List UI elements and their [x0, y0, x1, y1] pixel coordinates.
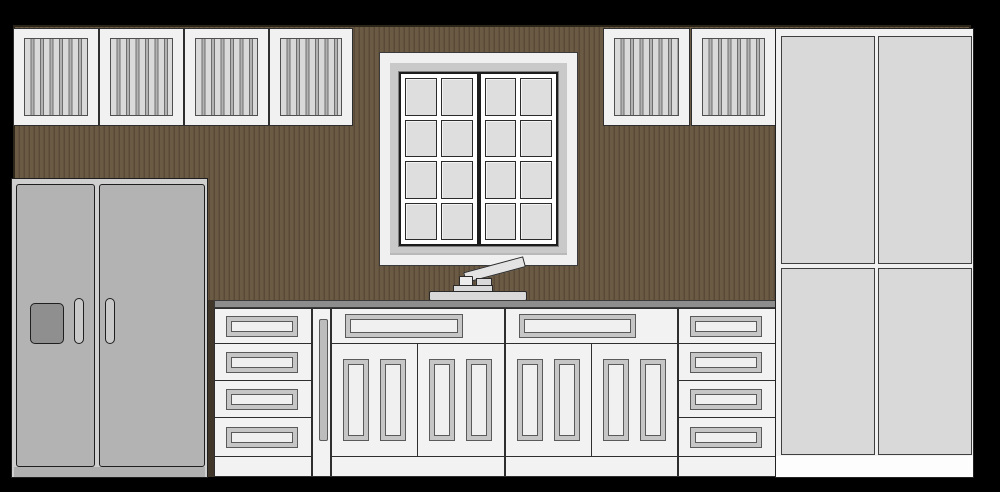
drawer-recess-panel — [345, 314, 463, 338]
fridge-ice-dispenser[interactable] — [30, 303, 64, 344]
sink-cabinet-4[interactable] — [505, 308, 678, 477]
upper-cabinet-6[interactable] — [691, 28, 776, 126]
drawer-recess-panel-center — [350, 319, 458, 333]
door-recess-center — [348, 364, 364, 436]
door-recess-panel — [603, 359, 629, 441]
drawer-recess-panel — [226, 352, 298, 373]
drawer-recess-panel — [226, 316, 298, 337]
fridge-base — [14, 467, 205, 477]
door-recess-center — [471, 364, 487, 436]
tall-pantry-cabinet[interactable] — [775, 28, 974, 478]
window-pane — [441, 161, 473, 199]
door-recess-center — [559, 364, 575, 436]
upper-cabinet-5[interactable] — [603, 28, 690, 126]
drawer[interactable] — [215, 309, 311, 344]
cabinet-door[interactable] — [418, 344, 504, 456]
filler-2[interactable] — [312, 308, 331, 477]
drawer[interactable] — [679, 344, 775, 381]
window-pane — [405, 120, 437, 158]
cabinet-door[interactable] — [332, 344, 418, 456]
window-pane — [485, 78, 517, 116]
drawer-recess-panel — [690, 352, 762, 373]
upper-cabinet-1[interactable] — [13, 28, 99, 126]
drawer-recess-panel-center — [524, 319, 631, 333]
drawer[interactable] — [679, 418, 775, 457]
door-recess-panel — [466, 359, 492, 441]
door-recess-panel — [517, 359, 543, 441]
pantry-plinth — [776, 456, 973, 477]
drawer[interactable] — [679, 381, 775, 418]
window-inner — [398, 71, 559, 247]
sink-top-drawer[interactable] — [506, 309, 677, 344]
door-recess-panel — [429, 359, 455, 441]
fridge-door-handle — [105, 298, 115, 344]
cabinet-door[interactable] — [592, 344, 678, 456]
cabinet-door[interactable] — [506, 344, 592, 456]
drawer[interactable] — [215, 344, 311, 381]
slat-door-panel — [24, 38, 88, 116]
pantry-door[interactable] — [878, 36, 972, 264]
window-pane — [405, 78, 437, 116]
window-pane — [405, 203, 437, 241]
upper-cabinet-2[interactable] — [99, 28, 184, 126]
window-casement-1[interactable] — [399, 72, 479, 246]
slat-door-panel — [702, 38, 765, 116]
drawer-recess-panel — [690, 389, 762, 410]
drawer-recess-panel-center — [695, 432, 757, 443]
tray-filler-panel — [319, 319, 328, 441]
drawer-recess-panel-center — [695, 357, 757, 368]
pantry-door[interactable] — [781, 268, 875, 455]
kitchen-elevation-canvas — [0, 0, 1000, 492]
drawer-recess-panel-center — [695, 321, 757, 332]
drawer-recess-panel-center — [231, 394, 293, 405]
kitchen-window[interactable] — [379, 52, 578, 266]
slat-door-panel — [195, 38, 258, 116]
sink-doors — [506, 344, 677, 457]
window-pane — [520, 203, 552, 241]
drawer-recess-panel-center — [695, 394, 757, 405]
slat-door-panel — [280, 38, 342, 116]
door-recess-panel — [554, 359, 580, 441]
drawer-recess-panel — [690, 427, 762, 448]
drawer-recess-panel-center — [231, 321, 293, 332]
drawer-recess-panel-center — [231, 357, 293, 368]
door-recess-center — [434, 364, 450, 436]
window-pane — [441, 78, 473, 116]
drawer-unit-1[interactable] — [214, 308, 312, 477]
pantry-door[interactable] — [878, 268, 972, 455]
drawer-recess-panel — [519, 314, 636, 338]
door-recess-center — [385, 364, 401, 436]
window-pane — [520, 161, 552, 199]
countertop[interactable] — [214, 300, 776, 308]
door-recess-center — [645, 364, 661, 436]
window-casement-2[interactable] — [479, 72, 559, 246]
drawer[interactable] — [215, 381, 311, 418]
door-recess-center — [522, 364, 538, 436]
slat-door-panel — [614, 38, 679, 116]
window-pane — [520, 78, 552, 116]
drawer-recess-panel — [690, 316, 762, 337]
sink-cabinet-3[interactable] — [331, 308, 505, 477]
slat-door-panel — [110, 38, 173, 116]
fridge-door-handle — [74, 298, 84, 344]
drawer-recess-panel — [226, 427, 298, 448]
upper-cabinet-4[interactable] — [269, 28, 353, 126]
drawer[interactable] — [215, 418, 311, 457]
drawer-recess-panel — [226, 389, 298, 410]
door-recess-center — [608, 364, 624, 436]
window-pane — [441, 120, 473, 158]
upper-cabinet-3[interactable] — [184, 28, 269, 126]
refrigerator[interactable] — [11, 178, 208, 478]
sink-top-drawer[interactable] — [332, 309, 504, 344]
window-pane — [441, 203, 473, 241]
pantry-door[interactable] — [781, 36, 875, 264]
door-recess-panel — [380, 359, 406, 441]
window-pane — [485, 161, 517, 199]
door-recess-panel — [640, 359, 666, 441]
window-pane — [485, 120, 517, 158]
door-recess-panel — [343, 359, 369, 441]
drawer[interactable] — [679, 309, 775, 344]
window-pane — [485, 203, 517, 241]
window-pane — [405, 161, 437, 199]
sink-doors — [332, 344, 504, 457]
drawer-recess-panel-center — [231, 432, 293, 443]
drawer-unit-5[interactable] — [678, 308, 776, 477]
window-pane — [520, 120, 552, 158]
